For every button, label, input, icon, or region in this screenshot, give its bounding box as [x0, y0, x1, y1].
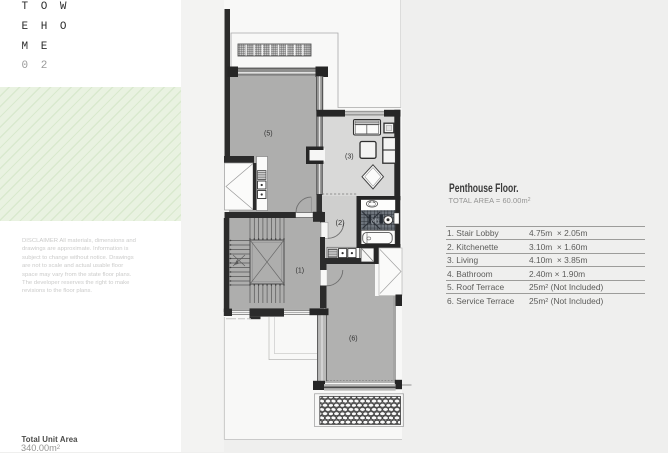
svg-text:(1): (1) — [296, 268, 305, 275]
svg-text:(5): (5) — [264, 131, 273, 138]
svg-text:(3): (3) — [345, 154, 354, 161]
svg-text:(6): (6) — [349, 336, 358, 343]
svg-text:(2): (2) — [336, 218, 346, 227]
svg-text:(4): (4) — [371, 218, 379, 225]
